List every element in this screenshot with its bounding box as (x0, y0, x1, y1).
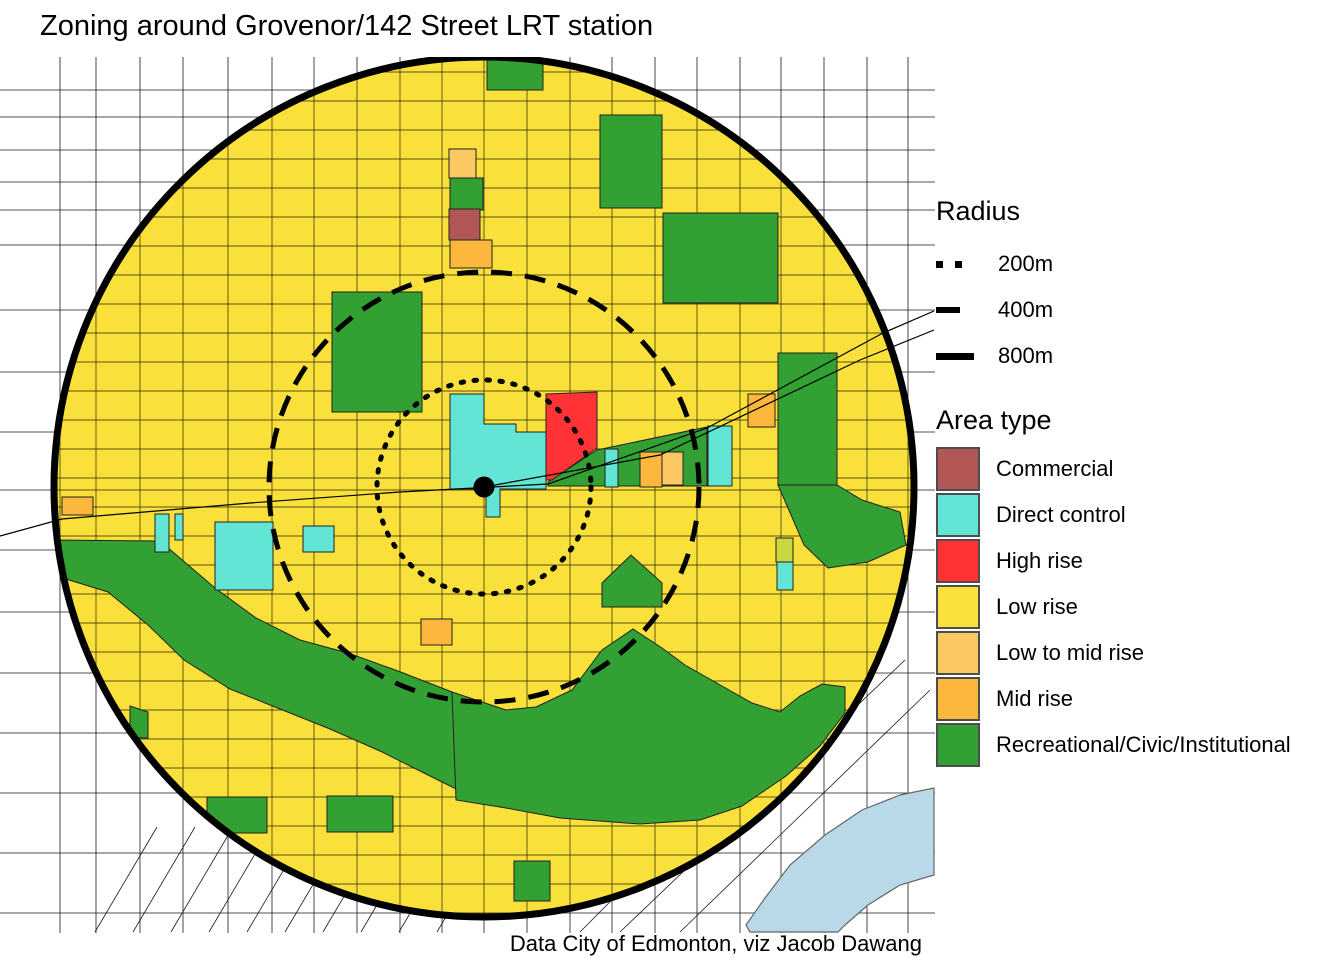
legend-radius-item: 400m (936, 287, 1336, 333)
legend-area-type-label: Low rise (996, 594, 1078, 620)
zone-recreational (332, 292, 422, 412)
legend-area-type-label: Recreational/Civic/Institutional (996, 732, 1291, 758)
zone-low-mid-rise (662, 452, 683, 485)
zone-recreational (487, 60, 543, 90)
legend-area-type-item: Recreational/Civic/Institutional (936, 722, 1336, 768)
zone-recreational (514, 861, 550, 901)
legend-area-type-item: Direct control (936, 492, 1336, 538)
legend-color-swatch (936, 677, 980, 721)
zone-recreational (327, 796, 393, 832)
zone-direct-control (155, 514, 169, 552)
zone-direct-control (303, 526, 334, 552)
legend-area-type-item: Low rise (936, 584, 1336, 630)
zone-direct-control (708, 426, 732, 486)
zone-commercial (449, 209, 480, 240)
zone-recreational (663, 213, 778, 303)
zoning-figure: Zoning around Grovenor/142 Street LRT st… (0, 0, 1344, 960)
legend-area-type-label: High rise (996, 548, 1083, 574)
legend-area-type-label: Direct control (996, 502, 1126, 528)
zone-direct-control (605, 449, 618, 487)
zoning-map (0, 0, 935, 960)
legend-color-swatch (936, 585, 980, 629)
river-water-body (746, 788, 934, 932)
zone-recreational (778, 353, 837, 485)
legend-area-type-item: Commercial (936, 446, 1336, 492)
legend-area-type-label: Low to mid rise (996, 640, 1144, 666)
zone-mid-rise (640, 452, 662, 487)
zone-recreational (450, 178, 483, 210)
radius-legend-title: Radius (936, 196, 1336, 227)
legend-radius-item: 200m (936, 241, 1336, 287)
legend-area-type-item: High rise (936, 538, 1336, 584)
legend-color-swatch (936, 539, 980, 583)
radius-legend-items: 200m400m800m (936, 241, 1336, 379)
lrt-station-marker (474, 477, 495, 498)
zone-direct-control (175, 514, 183, 540)
zone-mid-rise (450, 240, 492, 268)
dotted-line-sample (936, 261, 994, 268)
area-type-legend-items: CommercialDirect controlHigh riseLow ris… (936, 446, 1336, 768)
legend-area-type-label: Commercial (996, 456, 1113, 482)
legend: Radius 200m400m800m Area type Commercial… (936, 196, 1336, 768)
legend-radius-label: 200m (998, 251, 1053, 277)
legend-radius-label: 400m (998, 297, 1053, 323)
legend-color-swatch (936, 723, 980, 767)
zone-recreational (600, 115, 662, 208)
legend-area-type-label: Mid rise (996, 686, 1073, 712)
data-credit: Data City of Edmonton, viz Jacob Dawang (470, 931, 922, 957)
legend-area-type-item: Low to mid rise (936, 630, 1336, 676)
dashed-line-sample (936, 307, 994, 313)
legend-radius-label: 800m (998, 343, 1053, 369)
area-type-legend-title: Area type (936, 405, 1336, 436)
zone-low-mid-rise (449, 149, 476, 178)
legend-color-swatch (936, 493, 980, 537)
legend-area-type-item: Mid rise (936, 676, 1336, 722)
zone-mid-rise (62, 497, 93, 515)
zone-other-olive (776, 538, 793, 562)
zone-mid-rise (421, 619, 452, 645)
legend-color-swatch (936, 631, 980, 675)
legend-radius-item: 800m (936, 333, 1336, 379)
zone-direct-control (215, 522, 273, 590)
zone-direct-control (777, 559, 793, 590)
solid-line-sample (936, 353, 994, 360)
legend-color-swatch (936, 447, 980, 491)
